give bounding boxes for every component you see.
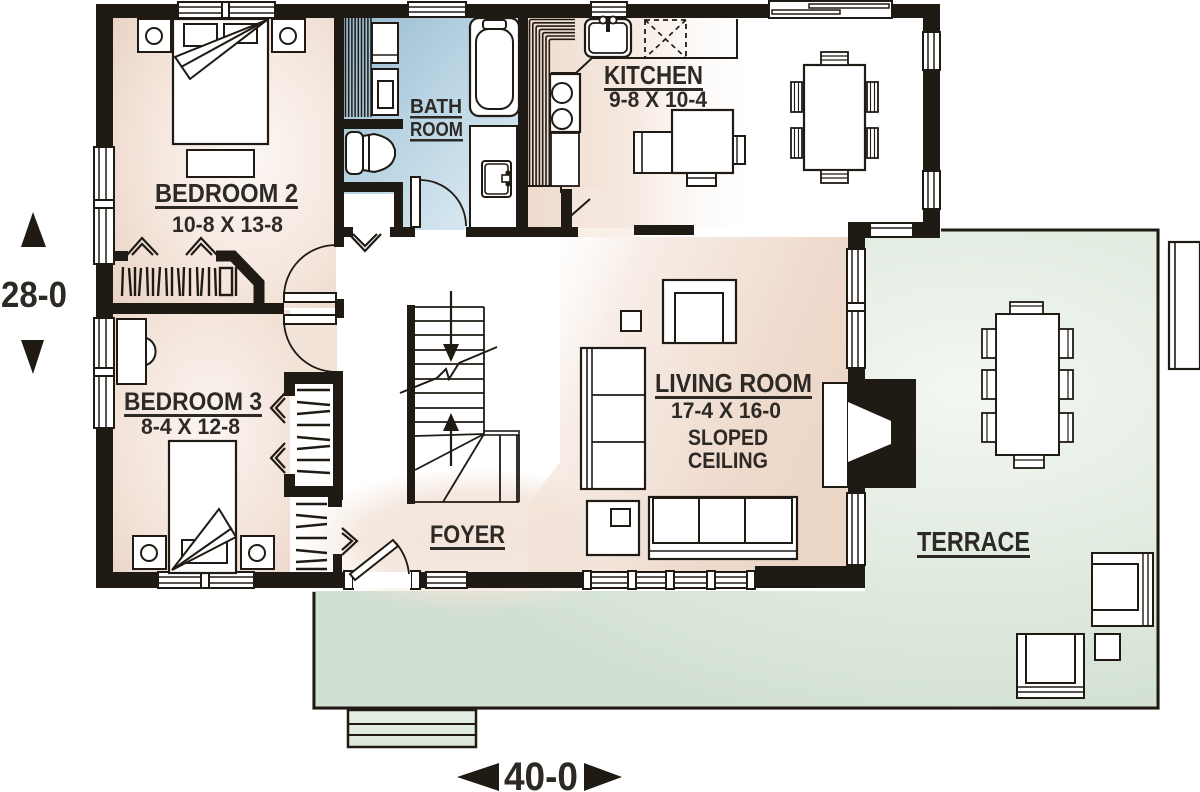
svg-text:FOYER: FOYER xyxy=(430,521,505,549)
svg-text:10-8 X 13-8: 10-8 X 13-8 xyxy=(172,212,283,237)
svg-text:BATH: BATH xyxy=(410,96,462,118)
svg-text:TERRACE: TERRACE xyxy=(917,526,1030,557)
svg-text:ROOM: ROOM xyxy=(410,119,463,141)
svg-text:40-0: 40-0 xyxy=(504,755,578,792)
svg-text:SLOPED: SLOPED xyxy=(688,425,768,450)
svg-text:CEILING: CEILING xyxy=(688,448,768,473)
svg-text:9-8 X 10-4: 9-8 X 10-4 xyxy=(609,87,708,112)
svg-text:8-4 X 12-8: 8-4 X 12-8 xyxy=(141,414,240,439)
svg-text:BEDROOM 2: BEDROOM 2 xyxy=(155,178,298,208)
svg-text:LIVING ROOM: LIVING ROOM xyxy=(655,368,812,398)
svg-text:BEDROOM 3: BEDROOM 3 xyxy=(124,388,262,416)
svg-text:17-4 X 16-0: 17-4 X 16-0 xyxy=(671,398,781,423)
svg-text:KITCHEN: KITCHEN xyxy=(604,60,703,90)
svg-text:28-0: 28-0 xyxy=(1,274,67,315)
